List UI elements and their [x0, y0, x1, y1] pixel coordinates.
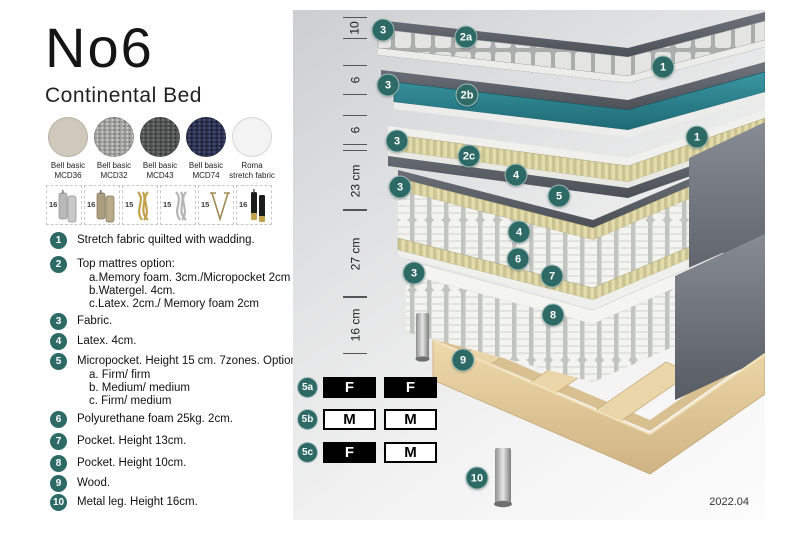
legend-text: Fabric. [77, 313, 112, 329]
leg-option: 16 [236, 185, 272, 225]
firmness-option-row: 5c F M [297, 442, 440, 463]
legend-text: Polyurethane foam 25kg. 2cm. [77, 411, 233, 427]
legend-number-badge: 9 [50, 475, 67, 492]
firmness-option-row: 5a F F [297, 377, 440, 398]
callout-badge: 1 [652, 56, 675, 79]
legend-text: Pocket. Height 10cm. [77, 455, 186, 471]
swatch-item: Romastretch fabric [229, 117, 275, 180]
legend-item: 9 Wood. [50, 475, 292, 492]
measurement: 16 cm [343, 296, 367, 354]
callout-badge: 7 [541, 265, 564, 288]
firmness-cell: M [384, 409, 437, 430]
legend-text: Pocket. Height 13cm. [77, 433, 186, 449]
legend-text: Latex. 4cm. [77, 333, 136, 349]
legend-item: 3 Fabric. [50, 313, 292, 330]
legend-item: 2 Top mattres option: a.Memory foam. 3cm… [50, 256, 292, 311]
option-badge: 5c [297, 442, 318, 463]
cylinder-silver-leg-icon [56, 189, 80, 223]
swatch-item: Bell basicMCD74 [183, 117, 229, 180]
swatch-item: Bell basicMCD36 [45, 117, 91, 180]
hairpin-leg-icon [208, 189, 232, 223]
legend-number-badge: 10 [50, 494, 67, 511]
callout-badge: 3 [403, 262, 426, 285]
diagram-panel: 10 6 6 23 cm 27 cm 16 cm 3 2a 1 3 2b 1 3… [293, 10, 765, 520]
option-badge: 5a [297, 377, 318, 398]
product-sheet: No6 Continental Bed Bell basicMCD36 Bell… [0, 0, 800, 533]
firmness-cell: F [323, 377, 376, 398]
firmness-cell: F [384, 377, 437, 398]
legend-text: Wood. [77, 475, 110, 491]
legend-item: 10 Metal leg. Height 16cm. [50, 494, 292, 511]
callout-badge: 3 [389, 176, 412, 199]
leg-options: 16 16 15 15 [46, 185, 272, 225]
fabric-swatches: Bell basicMCD36 Bell basicMCD32 Bell bas… [45, 117, 275, 180]
legend-number-badge: 5 [50, 353, 67, 370]
legend-item: 6 Polyurethane foam 25kg. 2cm. [50, 411, 292, 428]
fabric-swatch-icon [186, 117, 226, 157]
legend-text: Stretch fabric quilted with wadding. [77, 232, 255, 248]
callout-badge: 3 [372, 19, 395, 42]
callout-badge: 8 [542, 304, 565, 327]
measurement: 6 [343, 65, 367, 95]
callout-badge: 4 [508, 221, 531, 244]
layer-legend: 1 Stretch fabric quilted with wadding. 2… [50, 232, 292, 511]
legend-subitem: a.Memory foam. 3cm./Micropocket 2cm [89, 272, 290, 285]
legend-number-badge: 1 [50, 232, 67, 249]
fabric-swatch-icon [48, 117, 88, 157]
callout-badge: 3 [386, 130, 409, 153]
twisted-gold-leg-icon [132, 189, 156, 223]
firmness-option-row: 5b M M [297, 409, 440, 430]
fabric-swatch-icon [140, 117, 180, 157]
legend-item: 7 Pocket. Height 13cm. [50, 433, 292, 450]
measurement: 27 cm [343, 209, 367, 298]
callout-badge: 3 [377, 74, 400, 97]
callout-badge: 10 [466, 467, 489, 490]
legend-item: 8 Pocket. Height 10cm. [50, 455, 292, 472]
legend-number-badge: 2 [50, 256, 67, 273]
callout-badge: 2c [458, 145, 481, 168]
page-title: No6 [45, 20, 202, 76]
legend-item: 5 Micropocket. Height 15 cm. 7zones. Opt… [50, 353, 292, 408]
measurement: 23 cm [343, 150, 367, 211]
version-label: 2022.04 [709, 496, 749, 508]
firmness-cell: F [323, 442, 376, 463]
callout-badge: 2a [455, 26, 478, 49]
legend-number-badge: 7 [50, 433, 67, 450]
swatch-item: Bell basicMCD32 [91, 117, 137, 180]
option-badge: 5b [297, 409, 318, 430]
callout-badge: 2b [456, 84, 479, 107]
leg-option: 16 [84, 185, 120, 225]
legend-number-badge: 6 [50, 411, 67, 428]
firmness-cell: M [323, 409, 376, 430]
fabric-swatch-icon [232, 117, 272, 157]
swatch-label: Bell basicMCD36 [45, 161, 91, 180]
legend-subitem: b.Watergel. 4cm. [89, 285, 290, 298]
legend-subitem: a. Firm/ firm [89, 369, 300, 382]
fabric-swatch-icon [94, 117, 134, 157]
leg-option: 16 [46, 185, 82, 225]
callout-badge: 5 [548, 185, 571, 208]
leg-option: 15 [198, 185, 234, 225]
swatch-label: Bell basicMCD43 [137, 161, 183, 180]
measurement: 10 [343, 17, 367, 39]
legend-number-badge: 4 [50, 333, 67, 350]
firmness-cell: M [384, 442, 437, 463]
legend-subitem: c. Firm/ medium [89, 395, 300, 408]
callout-badge: 1 [686, 126, 709, 149]
legend-text: Micropocket. Height 15 cm. 7zones. Optio… [77, 353, 300, 369]
swatch-item: Bell basicMCD43 [137, 117, 183, 180]
callout-badge: 4 [505, 164, 528, 187]
callout-badge: 6 [507, 248, 530, 271]
legend-item: 1 Stretch fabric quilted with wadding. [50, 232, 292, 249]
swatch-label: Romastretch fabric [229, 161, 275, 180]
legend-text: Top mattres option: [77, 256, 290, 272]
measurement: 6 [343, 115, 367, 145]
legend-subitem: b. Medium/ medium [89, 382, 300, 395]
legend-number-badge: 3 [50, 313, 67, 330]
title-block: No6 Continental Bed [45, 20, 202, 108]
leg-option: 15 [122, 185, 158, 225]
cylinder-bronze-leg-icon [94, 189, 118, 223]
twisted-silver-leg-icon [170, 189, 194, 223]
swatch-label: Bell basicMCD32 [91, 161, 137, 180]
callout-badge: 9 [452, 349, 475, 372]
legend-subitem: c.Latex. 2cm./ Memory foam 2cm [89, 298, 290, 311]
legend-item: 4 Latex. 4cm. [50, 333, 292, 350]
black-gold-leg-icon [246, 189, 270, 223]
legend-number-badge: 8 [50, 455, 67, 472]
leg-option: 15 [160, 185, 196, 225]
legend-text: Metal leg. Height 16cm. [77, 494, 198, 510]
page-subtitle: Continental Bed [45, 84, 202, 108]
swatch-label: Bell basicMCD74 [183, 161, 229, 180]
